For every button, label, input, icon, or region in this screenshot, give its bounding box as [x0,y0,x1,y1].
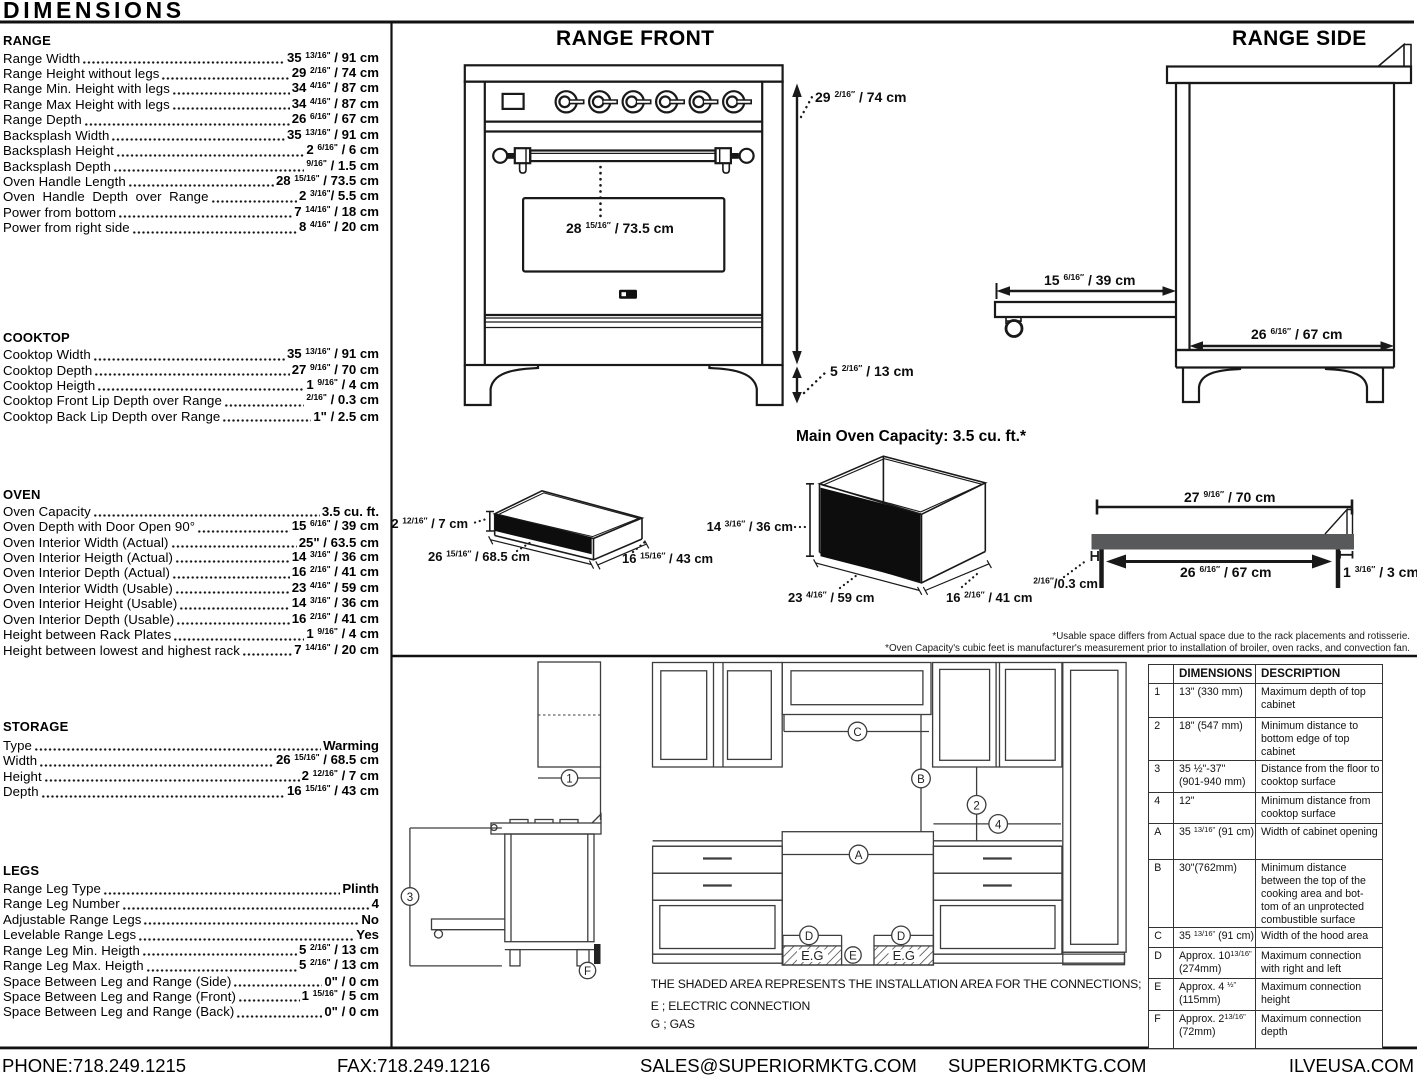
svg-text:27 9/16″ / 70 cm: 27 9/16″ / 70 cm [1184,489,1275,505]
svg-text:16 15/16″ / 43 cm: 16 15/16″ / 43 cm [622,551,713,567]
svg-text:2 12/16″ / 7 cm: 2 12/16″ / 7 cm [391,516,468,532]
svg-text:1 3/16″ / 3 cm: 1 3/16″ / 3 cm [1343,564,1417,580]
svg-text:E.G: E.G [893,948,915,963]
svg-text:23 4/16″ / 59 cm: 23 4/16″ / 59 cm [788,590,874,606]
svg-text:2/16″/0.3 cm: 2/16″/0.3 cm [1033,576,1098,592]
svg-text:26 6/16″ / 67 cm: 26 6/16″ / 67 cm [1180,564,1271,580]
svg-text:E.G: E.G [801,948,823,963]
svg-text:D: D [805,931,813,943]
svg-text:16 2/16″ / 41 cm: 16 2/16″ / 41 cm [946,590,1032,606]
svg-text:2: 2 [973,800,979,812]
svg-text:3: 3 [407,892,413,904]
svg-text:5 2/16″ / 13 cm: 5 2/16″ / 13 cm [830,363,914,379]
svg-text:F: F [584,966,591,978]
svg-text:15 6/16″ / 39 cm: 15 6/16″ / 39 cm [1044,272,1135,288]
svg-text:C: C [853,727,861,739]
svg-text:1: 1 [566,773,572,785]
svg-text:28 15/16″ / 73.5 cm: 28 15/16″ / 73.5 cm [566,220,674,236]
svg-text:26 6/16″ / 67 cm: 26 6/16″ / 67 cm [1251,326,1342,342]
svg-text:B: B [917,774,925,786]
svg-text:26 15/16″ / 68.5 cm: 26 15/16″ / 68.5 cm [428,549,530,565]
svg-text:E: E [849,951,857,963]
svg-text:4: 4 [995,819,1002,831]
svg-text:29 2/16″ / 74 cm: 29 2/16″ / 74 cm [815,89,906,105]
svg-text:D: D [897,931,905,943]
svg-text:A: A [855,850,863,862]
svg-text:14 3/16″ / 36 cm: 14 3/16″ / 36 cm [707,519,793,535]
